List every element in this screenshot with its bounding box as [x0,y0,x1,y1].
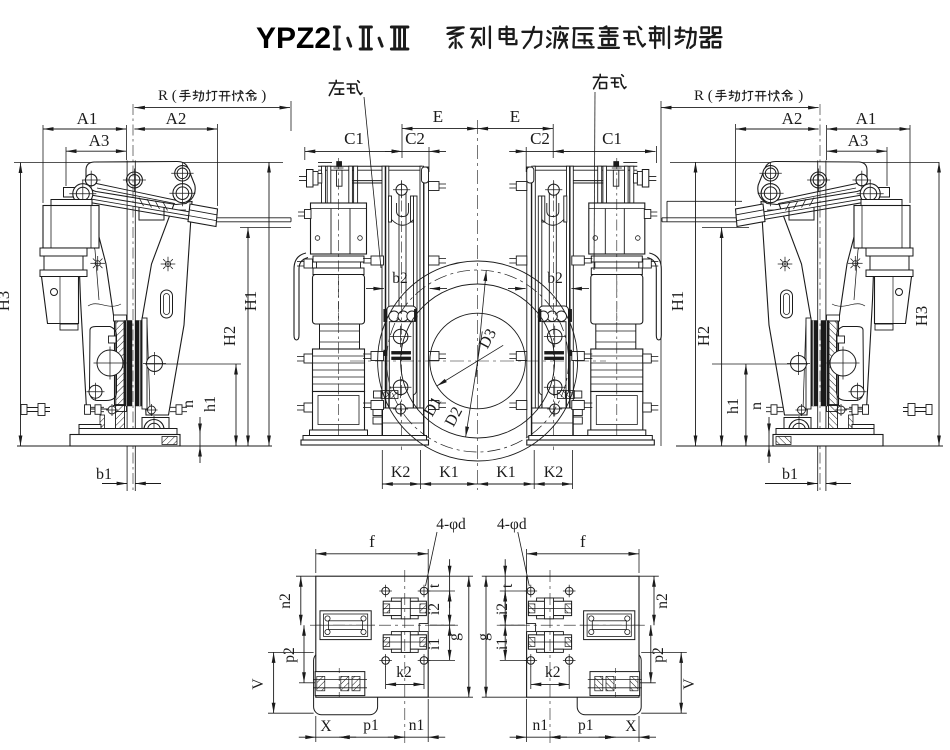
svg-text:A2: A2 [166,109,187,128]
svg-text:A3: A3 [89,131,110,150]
svg-text:V: V [681,678,698,690]
svg-text:p2: p2 [650,647,667,663]
svg-text:i2: i2 [494,603,511,615]
svg-text:K1: K1 [439,464,459,481]
svg-text:t: t [426,583,443,588]
svg-text:): ) [798,88,803,104]
svg-text:C2: C2 [405,129,425,148]
svg-text:p1: p1 [363,717,379,734]
svg-text:h1: h1 [202,396,219,412]
svg-text:H3: H3 [0,291,13,311]
svg-text:E: E [510,107,520,126]
svg-text:b2: b2 [547,270,563,287]
svg-text:i2: i2 [426,603,443,615]
svg-text:YPZ2: YPZ2 [256,22,331,55]
svg-text:t: t [499,583,516,588]
svg-text:p1: p1 [578,717,594,734]
svg-text:k2: k2 [396,664,412,681]
svg-text:C2: C2 [530,129,550,148]
svg-text:n2: n2 [654,593,671,609]
svg-text:H2: H2 [694,326,713,346]
svg-text:C1: C1 [602,129,622,148]
svg-text:H1: H1 [241,291,260,311]
svg-text:R (: R ( [158,88,177,104]
svg-text:K2: K2 [391,464,411,481]
svg-text:H2: H2 [220,326,239,346]
svg-text:A3: A3 [848,131,869,150]
svg-text:f: f [369,532,375,551]
svg-text:H1: H1 [668,291,687,311]
svg-text:): ) [261,88,266,104]
svg-text:X: X [625,718,636,735]
svg-text:f: f [580,532,586,551]
svg-text:4-φd: 4-φd [497,516,527,533]
svg-text:H3: H3 [912,306,931,326]
svg-text:A1: A1 [77,109,98,128]
svg-text:A2: A2 [782,109,803,128]
svg-text:K2: K2 [544,464,564,481]
svg-text:n2: n2 [277,593,294,609]
svg-text:p2: p2 [281,647,298,663]
svg-text:n1: n1 [533,717,549,734]
svg-text:C1: C1 [344,129,364,148]
svg-text:b1: b1 [782,466,798,483]
svg-text:R (: R ( [694,88,713,104]
svg-text:k2: k2 [545,664,561,681]
svg-text:K1: K1 [496,464,516,481]
svg-text:h1: h1 [725,398,742,414]
svg-text:b1: b1 [96,466,112,483]
svg-text:g: g [475,633,492,641]
svg-text:V: V [250,678,267,690]
svg-text:A1: A1 [856,109,877,128]
svg-text:X: X [320,718,331,735]
svg-text:4-φd: 4-φd [436,516,466,533]
svg-text:n: n [180,400,197,408]
svg-text:g: g [446,633,463,641]
svg-text:i1: i1 [494,638,511,650]
svg-text:n1: n1 [409,717,425,734]
svg-text:b2: b2 [392,270,408,287]
svg-text:E: E [433,107,443,126]
svg-text:i1: i1 [426,638,443,650]
svg-text:n: n [748,402,765,410]
